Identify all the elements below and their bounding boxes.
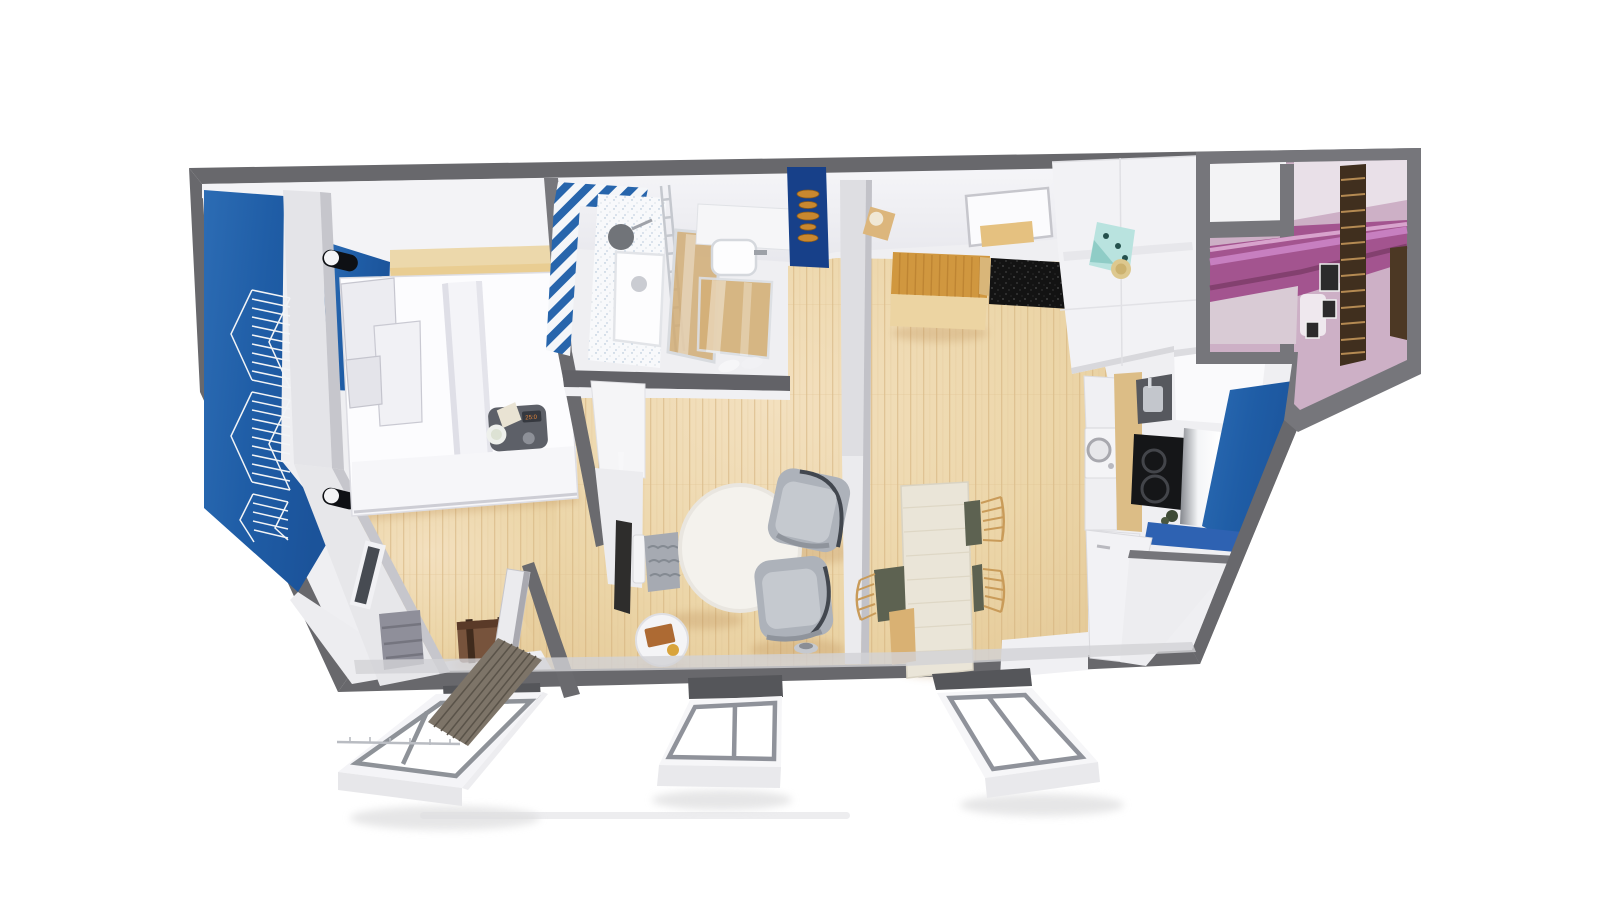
svg-text:25:0: 25:0 <box>525 415 538 422</box>
